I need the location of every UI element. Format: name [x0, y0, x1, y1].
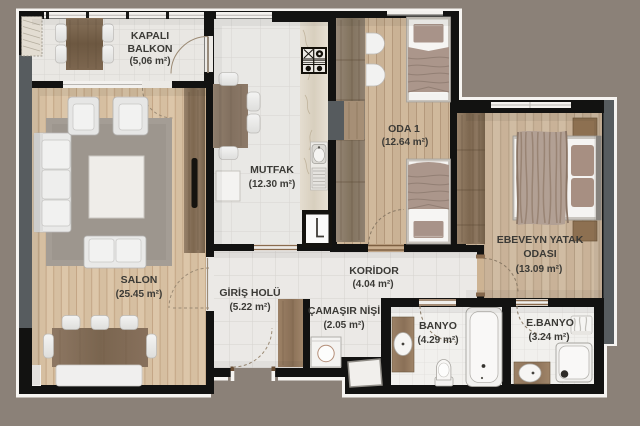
svg-text:(3.24 m²): (3.24 m²) [528, 332, 569, 343]
svg-text:KAPALI: KAPALI [131, 30, 169, 42]
svg-text:ODASI: ODASI [523, 248, 556, 260]
svg-text:KORİDOR: KORİDOR [349, 264, 399, 277]
svg-text:BALKON: BALKON [128, 43, 173, 55]
svg-text:(5.22 m²): (5.22 m²) [229, 302, 270, 313]
svg-text:MUTFAK: MUTFAK [250, 164, 294, 176]
svg-text:(12.30 m²): (12.30 m²) [249, 179, 296, 190]
svg-text:(5,06 m²): (5,06 m²) [129, 56, 170, 67]
svg-text:(12.64 m²): (12.64 m²) [382, 137, 429, 148]
svg-text:(4.29 m²): (4.29 m²) [417, 335, 458, 346]
svg-text:E.BANYO: E.BANYO [526, 317, 574, 329]
svg-text:ODA 1: ODA 1 [388, 123, 420, 135]
svg-text:ÇAMAŞIR NİŞİ: ÇAMAŞIR NİŞİ [308, 304, 380, 317]
svg-text:(4.04 m²): (4.04 m²) [352, 279, 393, 290]
svg-text:GİRİŞ HOLÜ: GİRİŞ HOLÜ [219, 286, 280, 299]
svg-text:(2.05 m²): (2.05 m²) [323, 320, 364, 331]
svg-text:SALON: SALON [121, 274, 158, 286]
svg-text:(13.09 m²): (13.09 m²) [516, 264, 563, 275]
svg-text:(25.45 m²): (25.45 m²) [116, 289, 163, 300]
svg-text:EBEVEYN YATAK: EBEVEYN YATAK [497, 234, 584, 246]
svg-text:BANYO: BANYO [419, 320, 457, 332]
